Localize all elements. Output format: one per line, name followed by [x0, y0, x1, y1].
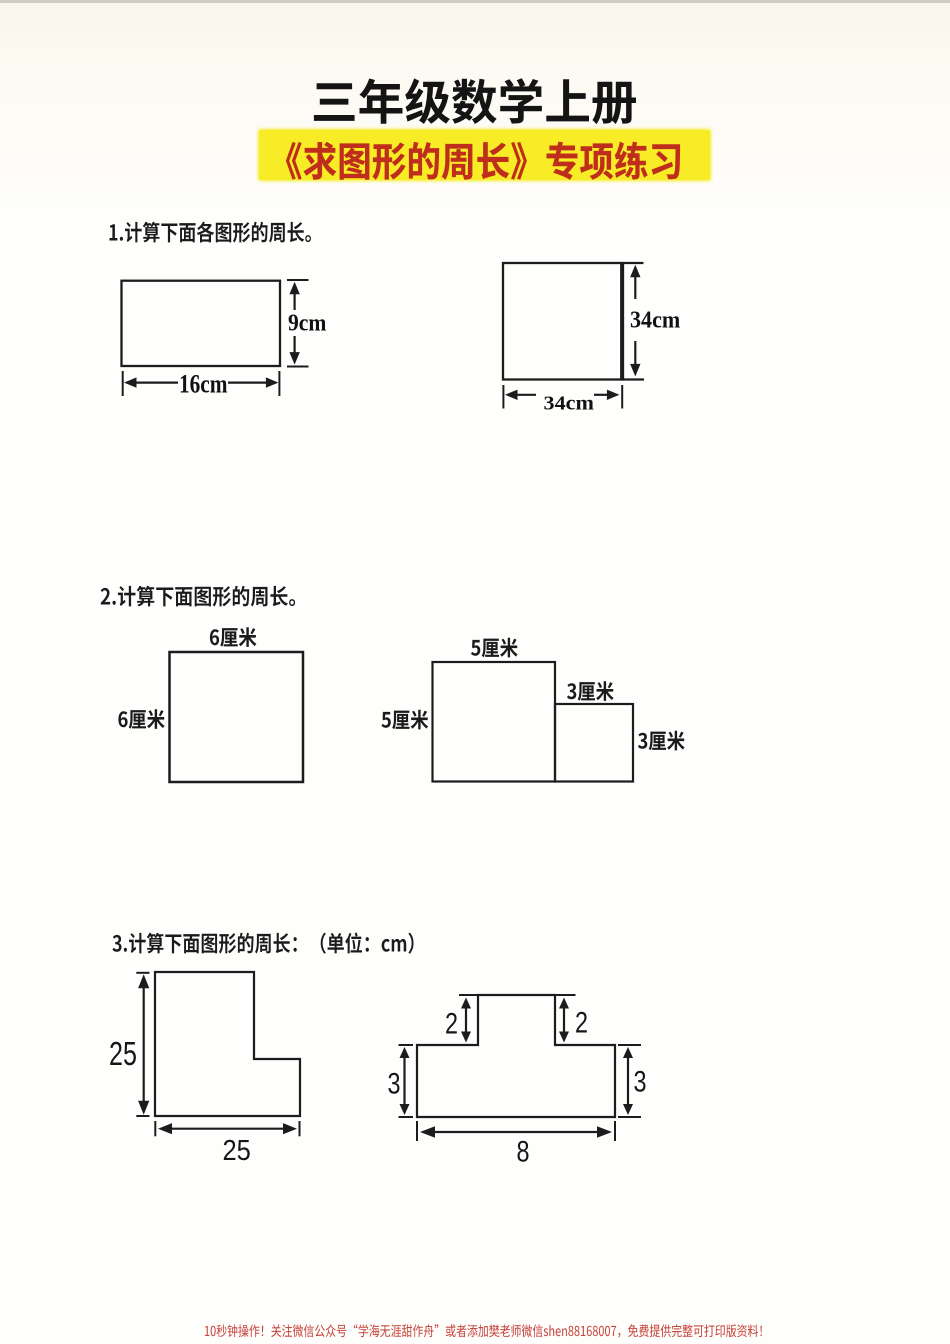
svg-text:3: 3: [634, 1065, 647, 1098]
svg-text:16cm: 16cm: [179, 371, 228, 399]
svg-text:25: 25: [109, 1036, 137, 1073]
svg-text:8: 8: [517, 1135, 530, 1168]
svg-text:2: 2: [575, 1006, 588, 1039]
svg-text:3: 3: [388, 1067, 401, 1100]
svg-text:25: 25: [223, 1133, 251, 1166]
svg-text:34cm: 34cm: [544, 391, 595, 414]
svg-text:2: 2: [445, 1007, 458, 1040]
svg-text:34cm: 34cm: [630, 305, 680, 332]
svg-text:9cm: 9cm: [288, 309, 326, 335]
